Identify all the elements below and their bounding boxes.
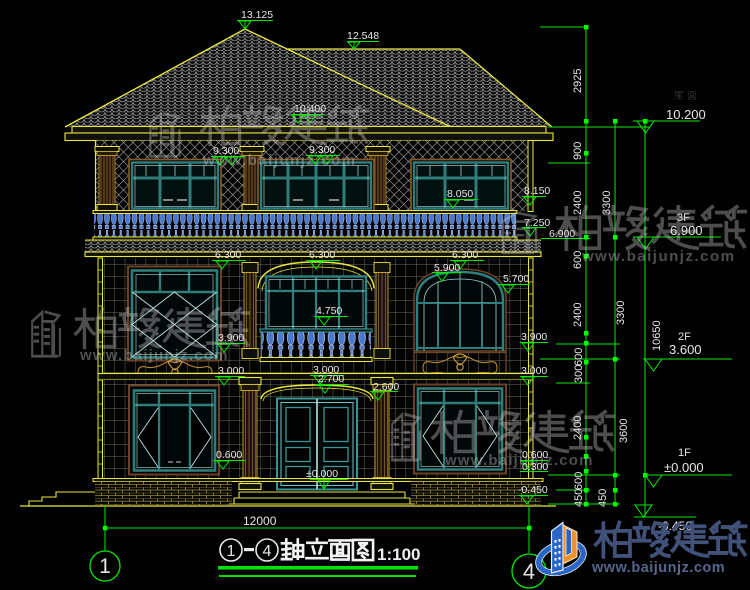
svg-text:-0.450: -0.450 <box>518 484 548 496</box>
svg-text:www.baijunjz.com: www.baijunjz.com <box>444 452 594 469</box>
svg-text:4: 4 <box>523 559 535 584</box>
svg-text:1F: 1F <box>678 447 691 459</box>
svg-text:10.200: 10.200 <box>666 107 706 122</box>
svg-text:3.900: 3.900 <box>521 331 547 343</box>
svg-text:13.125: 13.125 <box>241 9 273 21</box>
svg-text:12000: 12000 <box>243 514 277 528</box>
svg-text:10650: 10650 <box>651 320 663 351</box>
svg-text:900: 900 <box>572 142 584 160</box>
svg-text:±0.000: ±0.000 <box>664 460 704 475</box>
svg-text:2400: 2400 <box>572 303 584 327</box>
svg-text:3600: 3600 <box>618 419 630 443</box>
svg-text:600: 600 <box>573 472 585 490</box>
svg-text:600: 600 <box>573 348 585 366</box>
svg-text:450: 450 <box>573 489 585 507</box>
svg-text:2F: 2F <box>678 331 691 343</box>
svg-text:5.700: 5.700 <box>503 273 529 285</box>
svg-text:3300: 3300 <box>615 301 627 325</box>
svg-text:www.baijunjz.com: www.baijunjz.com <box>202 152 356 169</box>
svg-text:1: 1 <box>227 543 236 560</box>
svg-text:8.150: 8.150 <box>524 185 550 197</box>
svg-text:3.000: 3.000 <box>521 365 547 377</box>
svg-text:2400: 2400 <box>572 191 584 215</box>
svg-text:2.600: 2.600 <box>373 381 399 393</box>
svg-text:4: 4 <box>263 543 272 560</box>
svg-text:300: 300 <box>573 365 585 383</box>
svg-text:8.050: 8.050 <box>447 188 473 200</box>
svg-text:4.750: 4.750 <box>316 305 342 317</box>
svg-text:450: 450 <box>597 489 609 507</box>
svg-text:5.900: 5.900 <box>434 262 460 274</box>
svg-text:6.300: 6.300 <box>215 249 241 261</box>
svg-text:2925: 2925 <box>572 69 584 93</box>
svg-text:±0.000: ±0.000 <box>306 468 338 480</box>
svg-text:1:100: 1:100 <box>377 545 420 564</box>
svg-text:6.300: 6.300 <box>309 249 335 261</box>
svg-text:12.548: 12.548 <box>347 30 379 42</box>
svg-text:2.700: 2.700 <box>318 373 344 385</box>
svg-text:www.baijunjz.com: www.baijunjz.com <box>591 560 725 576</box>
svg-text:1: 1 <box>99 555 111 578</box>
svg-text:0.600: 0.600 <box>216 449 242 461</box>
svg-text:3300: 3300 <box>601 191 613 215</box>
svg-text:3.600: 3.600 <box>669 342 702 357</box>
svg-text:www.baijunjz.com: www.baijunjz.com <box>581 248 735 265</box>
svg-text:6.300: 6.300 <box>452 249 478 261</box>
svg-text:www.baijunjz.com: www.baijunjz.com <box>79 347 229 364</box>
svg-text:3.000: 3.000 <box>218 365 244 377</box>
